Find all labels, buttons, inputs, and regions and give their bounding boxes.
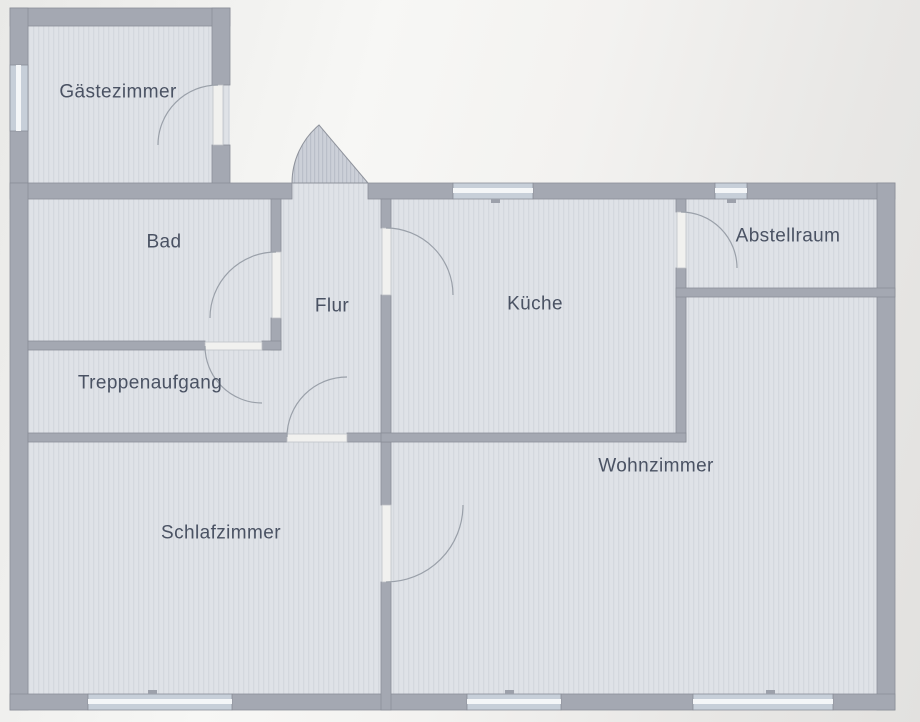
floor-main-body xyxy=(10,183,895,710)
wall-treppenaufgang-top-left xyxy=(28,341,205,350)
wall-central-upper xyxy=(381,199,391,228)
window-tick xyxy=(148,690,157,694)
wall-top-segment-2 xyxy=(368,183,453,199)
room-label-schlafzimmer: Schlafzimmer xyxy=(161,523,281,544)
room-label-flur: Flur xyxy=(315,296,350,317)
wall-gaestezimmer-right-upper xyxy=(212,8,230,85)
window-tick xyxy=(727,199,736,203)
floorplan-photo: Gästezimmer Bad Flur Küche Abstellraum T… xyxy=(0,0,920,722)
wall-bottom-segment-3 xyxy=(561,694,693,710)
wall-kueche-right-upper xyxy=(676,199,686,212)
wall-right-exterior xyxy=(877,183,895,710)
room-label-kueche: Küche xyxy=(507,294,563,315)
window-tick xyxy=(505,690,514,694)
room-label-bad: Bad xyxy=(146,232,181,253)
wall-top-segment-3 xyxy=(533,183,715,199)
floor-gaestezimmer-annex xyxy=(10,8,230,198)
entrance-door-swing xyxy=(292,125,368,183)
room-label-wohnzimmer: Wohnzimmer xyxy=(598,456,714,477)
wall-bottom-segment-1 xyxy=(10,694,88,710)
window-gaestezimmer-left xyxy=(10,65,28,131)
wall-schlafzimmer-top-left xyxy=(28,433,287,442)
room-label-treppenaufgang: Treppenaufgang xyxy=(78,373,222,394)
window-tick xyxy=(491,199,500,203)
wall-bottom-segment-2 xyxy=(232,694,467,710)
floorplan-canvas: Gästezimmer Bad Flur Küche Abstellraum T… xyxy=(0,0,920,722)
wall-gaestezimmer-top xyxy=(10,8,230,26)
room-label-abstellraum: Abstellraum xyxy=(736,226,841,247)
window-tick xyxy=(766,690,775,694)
wall-bottom-segment-4 xyxy=(833,694,895,710)
wall-treppenaufgang-top-right xyxy=(262,341,281,350)
wall-top-segment-1 xyxy=(10,183,292,199)
room-label-gaestezimmer: Gästezimmer xyxy=(59,82,177,103)
floor-area xyxy=(10,8,895,710)
wall-kueche-bottom xyxy=(381,433,686,442)
wall-bad-flur-upper xyxy=(271,199,281,252)
wall-top-segment-4 xyxy=(747,183,895,199)
door-entrance xyxy=(292,125,368,183)
wall-left-exterior xyxy=(10,183,28,710)
wall-central-middle xyxy=(381,295,391,505)
wall-central-lower xyxy=(381,582,391,710)
wall-abstellraum-bottom xyxy=(676,288,895,297)
